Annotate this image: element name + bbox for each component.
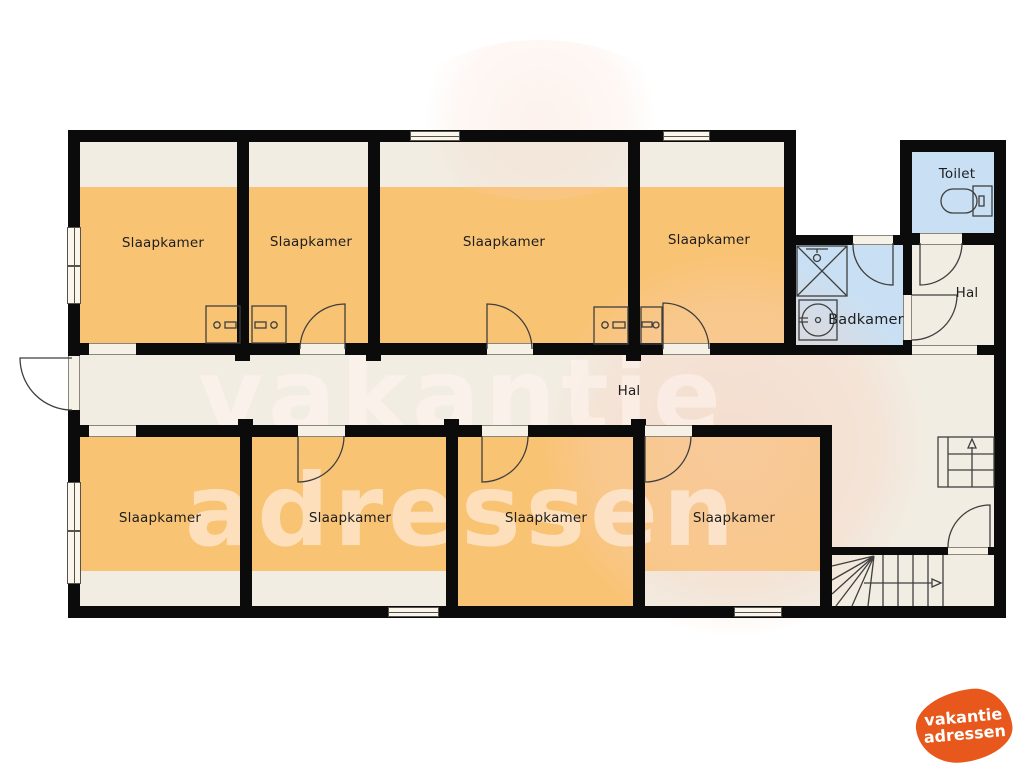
wall-segment xyxy=(240,437,252,606)
entrance-door-swing xyxy=(20,358,72,410)
room-slaapkamer-5-ceiling-band xyxy=(80,571,240,606)
door-opening xyxy=(948,547,988,555)
door-opening xyxy=(487,343,533,355)
wall-segment xyxy=(994,140,1006,618)
room-slaapkamer-2-floor xyxy=(249,187,368,343)
wall-stub xyxy=(631,419,646,425)
door-opening xyxy=(89,343,136,355)
door-opening xyxy=(482,425,528,437)
room-slaapkamer-1-floor xyxy=(80,187,237,343)
wall-segment xyxy=(820,425,832,618)
door-opening xyxy=(300,343,345,355)
room-label-slaapkamer-5: Slaapkamer xyxy=(119,510,201,526)
wall-segment xyxy=(977,345,1006,355)
room-toilet-floor xyxy=(912,152,994,233)
wall-segment xyxy=(988,547,994,555)
window xyxy=(734,607,782,617)
passage-opening xyxy=(912,345,977,355)
wall-segment xyxy=(446,437,458,606)
wall-segment xyxy=(68,606,1006,618)
room-label-slaapkamer-4: Slaapkamer xyxy=(668,232,750,248)
room-slaapkamer-6-ceiling-band xyxy=(252,571,446,606)
wall-stub xyxy=(444,419,459,425)
window xyxy=(410,131,460,141)
room-label-slaapkamer-3: Slaapkamer xyxy=(463,234,545,250)
door-opening xyxy=(298,425,345,437)
window xyxy=(67,531,81,584)
room-label-slaapkamer-7: Slaapkamer xyxy=(505,510,587,526)
room-label-slaapkamer-6: Slaapkamer xyxy=(309,510,391,526)
room-slaapkamer-1-ceiling-band xyxy=(80,142,237,187)
window xyxy=(67,266,81,304)
wall-segment xyxy=(368,142,380,343)
wall-stub xyxy=(626,355,641,361)
door-opening xyxy=(89,425,136,437)
logo-vakantieadressen: vakantie adressen xyxy=(914,688,1014,764)
room-label-slaapkamer-2: Slaapkamer xyxy=(270,234,352,250)
window xyxy=(67,227,81,266)
room-label-hal-main: Hal xyxy=(618,383,641,399)
wall-segment xyxy=(900,140,912,245)
window xyxy=(663,131,710,141)
window xyxy=(67,482,81,531)
room-label-toilet: Toilet xyxy=(939,166,976,182)
door-opening xyxy=(903,295,912,340)
room-label-hal-upper: Hal xyxy=(956,285,979,301)
watermark: vakantie adressen xyxy=(185,338,739,568)
wall-segment xyxy=(900,140,1006,152)
wall-segment xyxy=(68,425,832,437)
wall-stub xyxy=(235,355,250,361)
room-label-slaapkamer-8: Slaapkamer xyxy=(693,510,775,526)
wall-segment xyxy=(633,437,645,606)
door-opening xyxy=(645,425,692,437)
wall-stub xyxy=(366,355,381,361)
entrance-door-opening xyxy=(68,356,80,410)
floor-plan: vakantie adressen xyxy=(0,0,1024,768)
wall-segment xyxy=(628,142,640,343)
wall-segment xyxy=(832,547,948,555)
wall-segment xyxy=(237,142,249,343)
door-opening xyxy=(920,233,962,245)
door-opening xyxy=(853,235,893,245)
watermark-line-2: adressen xyxy=(185,453,739,568)
room-slaapkamer-2-ceiling-band xyxy=(249,142,368,187)
wall-segment xyxy=(784,345,912,355)
wall-stub xyxy=(238,419,253,425)
room-label-badkamer: Badkamer xyxy=(828,312,904,328)
door-opening xyxy=(663,343,710,355)
hall-upper-floor xyxy=(912,245,994,345)
window xyxy=(388,607,439,617)
room-label-slaapkamer-1: Slaapkamer xyxy=(122,235,204,251)
